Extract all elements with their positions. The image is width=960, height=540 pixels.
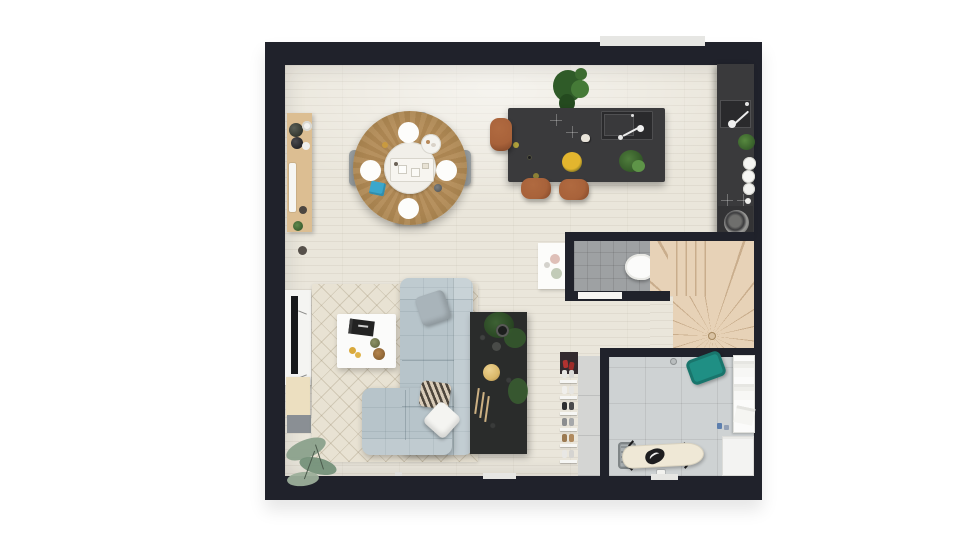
decor-vase xyxy=(299,206,307,214)
bottom-window-sill xyxy=(483,473,516,479)
condiment xyxy=(382,142,388,148)
bar-stool xyxy=(559,179,589,200)
stair-straight-flight xyxy=(668,240,712,296)
floor-decor xyxy=(298,246,307,255)
counter-plant xyxy=(738,134,755,150)
decor-plant xyxy=(293,221,303,231)
food-item xyxy=(422,163,429,169)
hob-marking xyxy=(737,194,749,206)
sofa-seam xyxy=(402,360,454,361)
coffee-table xyxy=(337,314,396,368)
plant-leaf xyxy=(571,80,589,98)
small-bowl xyxy=(527,155,532,160)
decor-slat xyxy=(474,388,480,414)
food-tray xyxy=(390,158,434,182)
tv-unit xyxy=(285,290,311,385)
shoe xyxy=(569,402,574,410)
decor-cup xyxy=(492,342,501,351)
shoe xyxy=(569,450,574,458)
hob-marking xyxy=(721,194,733,206)
shoe-shelf xyxy=(560,412,577,415)
food-item xyxy=(394,162,398,166)
shoe xyxy=(569,418,574,426)
plate-stack xyxy=(742,170,755,183)
console-plant xyxy=(508,378,528,404)
television xyxy=(291,296,298,374)
sideboard xyxy=(287,113,312,232)
bottom-window-sill xyxy=(651,474,678,480)
shoe-shelf xyxy=(560,380,577,383)
food-item xyxy=(426,140,430,144)
interior-wall xyxy=(600,348,609,476)
plate xyxy=(360,160,381,181)
hob-marking xyxy=(566,126,578,138)
floor-drain xyxy=(670,358,677,365)
bowl xyxy=(370,338,380,348)
plate xyxy=(398,122,419,143)
plant-leaf xyxy=(575,68,587,80)
floor-plant xyxy=(283,430,343,498)
island-sink xyxy=(601,111,653,140)
book xyxy=(348,319,375,337)
art-detail xyxy=(551,268,562,279)
decor-slat xyxy=(484,396,490,422)
bottom-window-sill xyxy=(395,472,402,476)
faucet-icon xyxy=(728,120,736,128)
exterior-walls xyxy=(265,42,762,500)
decor-cup xyxy=(302,121,312,131)
interior-wall xyxy=(600,348,754,357)
food-item xyxy=(431,143,436,147)
sofa-seam xyxy=(405,390,406,440)
bowl xyxy=(373,348,385,360)
shoe xyxy=(569,434,574,442)
faucet-base xyxy=(745,102,749,106)
detergent-bottle xyxy=(724,425,729,430)
cooktop xyxy=(718,206,753,235)
dining-table xyxy=(353,111,467,225)
shoe xyxy=(562,450,567,458)
plant-leaf xyxy=(286,470,319,487)
shoe-shelf xyxy=(560,396,577,399)
garlic xyxy=(581,134,590,142)
top-window-sill xyxy=(600,36,705,46)
soap-dispenser xyxy=(631,114,634,117)
wc-door xyxy=(578,292,622,299)
folded-linens xyxy=(734,384,754,400)
shoe xyxy=(562,386,567,394)
bar-stool xyxy=(490,118,512,151)
decor-cup xyxy=(302,142,310,150)
shoe-shelf xyxy=(560,460,577,463)
cup xyxy=(434,184,442,192)
kitchen-island xyxy=(508,108,665,182)
island-plant xyxy=(632,160,645,172)
washing-machine xyxy=(722,436,754,476)
food-item xyxy=(411,168,420,177)
stair-newel xyxy=(708,332,716,340)
folded-linens xyxy=(734,361,754,377)
shoe xyxy=(562,418,567,426)
detergent-bottle xyxy=(717,423,722,429)
linen-shelf xyxy=(733,355,755,433)
shoe-shelf xyxy=(560,444,577,447)
hob-marking xyxy=(550,114,562,126)
shoe xyxy=(569,370,574,378)
cream-cabinet xyxy=(286,377,310,416)
shoe xyxy=(569,386,574,394)
decor-bowl xyxy=(289,123,303,137)
plate xyxy=(436,160,457,181)
interior-wall xyxy=(565,232,754,241)
plate-stack xyxy=(743,157,756,170)
blue-napkin xyxy=(369,181,386,197)
sphere-lamp xyxy=(483,364,500,381)
art-detail xyxy=(550,254,560,264)
food-item xyxy=(398,165,407,174)
console-table xyxy=(470,312,527,454)
decor-slat xyxy=(479,392,485,418)
shoe xyxy=(562,370,567,378)
shoe xyxy=(562,434,567,442)
shoe-shelf xyxy=(560,428,577,431)
floorplan-canvas xyxy=(0,0,960,540)
fruit-bowl xyxy=(562,152,582,172)
art-detail xyxy=(544,262,550,268)
small-bowl xyxy=(513,142,519,148)
wall-art-panel xyxy=(538,243,566,289)
folded-linens xyxy=(733,405,755,426)
decor-tray xyxy=(289,163,296,212)
plate xyxy=(398,198,419,219)
cake-stand xyxy=(421,134,441,154)
bar-stool xyxy=(521,178,551,199)
wall-counter xyxy=(717,64,754,235)
snack xyxy=(355,352,361,358)
shoe xyxy=(562,402,567,410)
hall-floor-patch xyxy=(650,296,673,354)
decor-bowl xyxy=(496,324,509,337)
faucet-base xyxy=(618,135,623,140)
